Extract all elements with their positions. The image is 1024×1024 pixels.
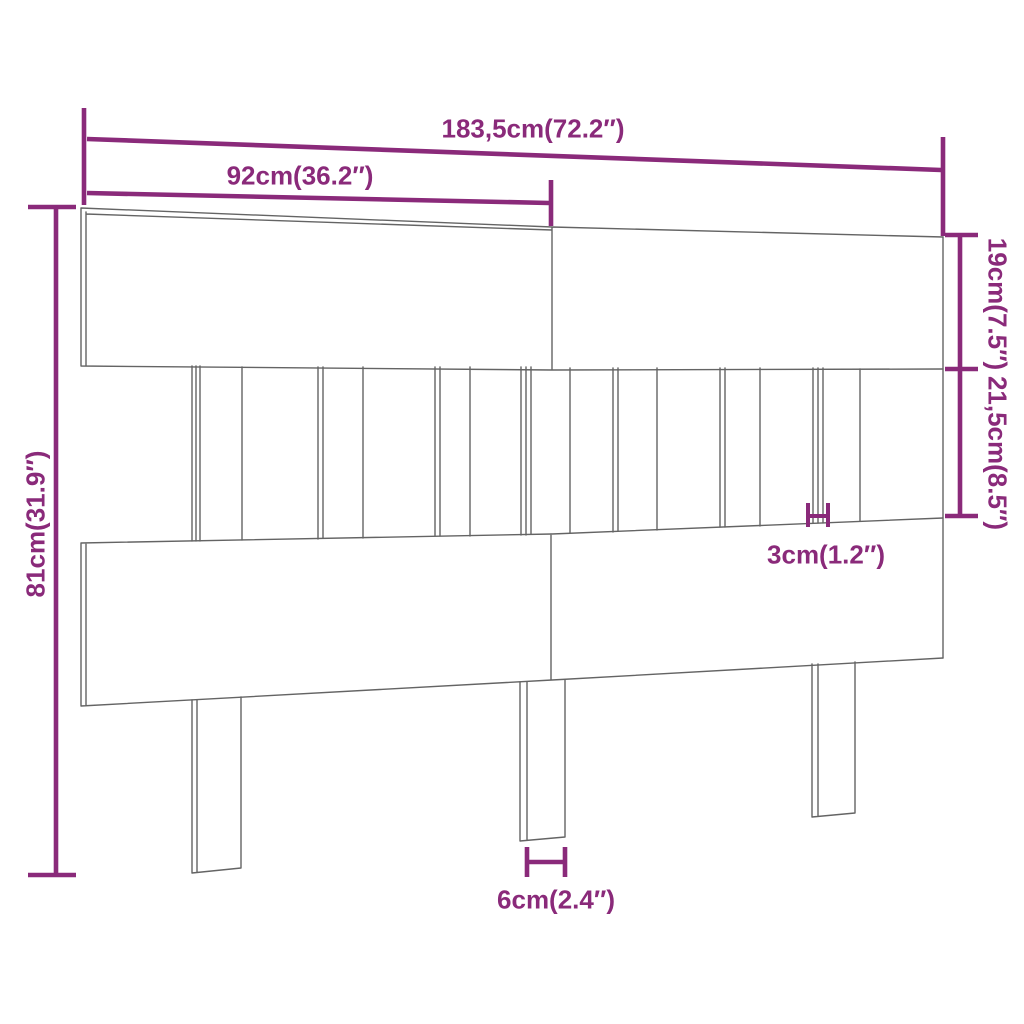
middle-leg [520,680,565,841]
top-rail-height-label: 19cm(7.5″) [982,238,1013,370]
slats [192,366,860,541]
diagram-canvas: 183,5cm(72.2″) 92cm(36.2″) 19cm(7.5″) 21… [0,0,1024,1024]
top-rail [81,208,943,370]
leg-width-dimension [527,847,565,877]
right-leg [812,662,855,817]
panel-width-label: 92cm(36.2″) [227,161,374,192]
board-thickness-label: 3cm(1.2″) [767,540,885,571]
dimension-lines [28,108,978,877]
right-heights-dimension [945,235,978,516]
headboard-line-drawing [0,0,1024,1024]
leg-width-label: 6cm(2.4″) [497,885,615,916]
total-width-label: 183,5cm(72.2″) [441,114,624,145]
left-leg [192,697,241,873]
slat-section-height-label: 21,5cm(8.5″) [982,376,1013,530]
total-height-label: 81cm(31.9″) [21,451,52,598]
